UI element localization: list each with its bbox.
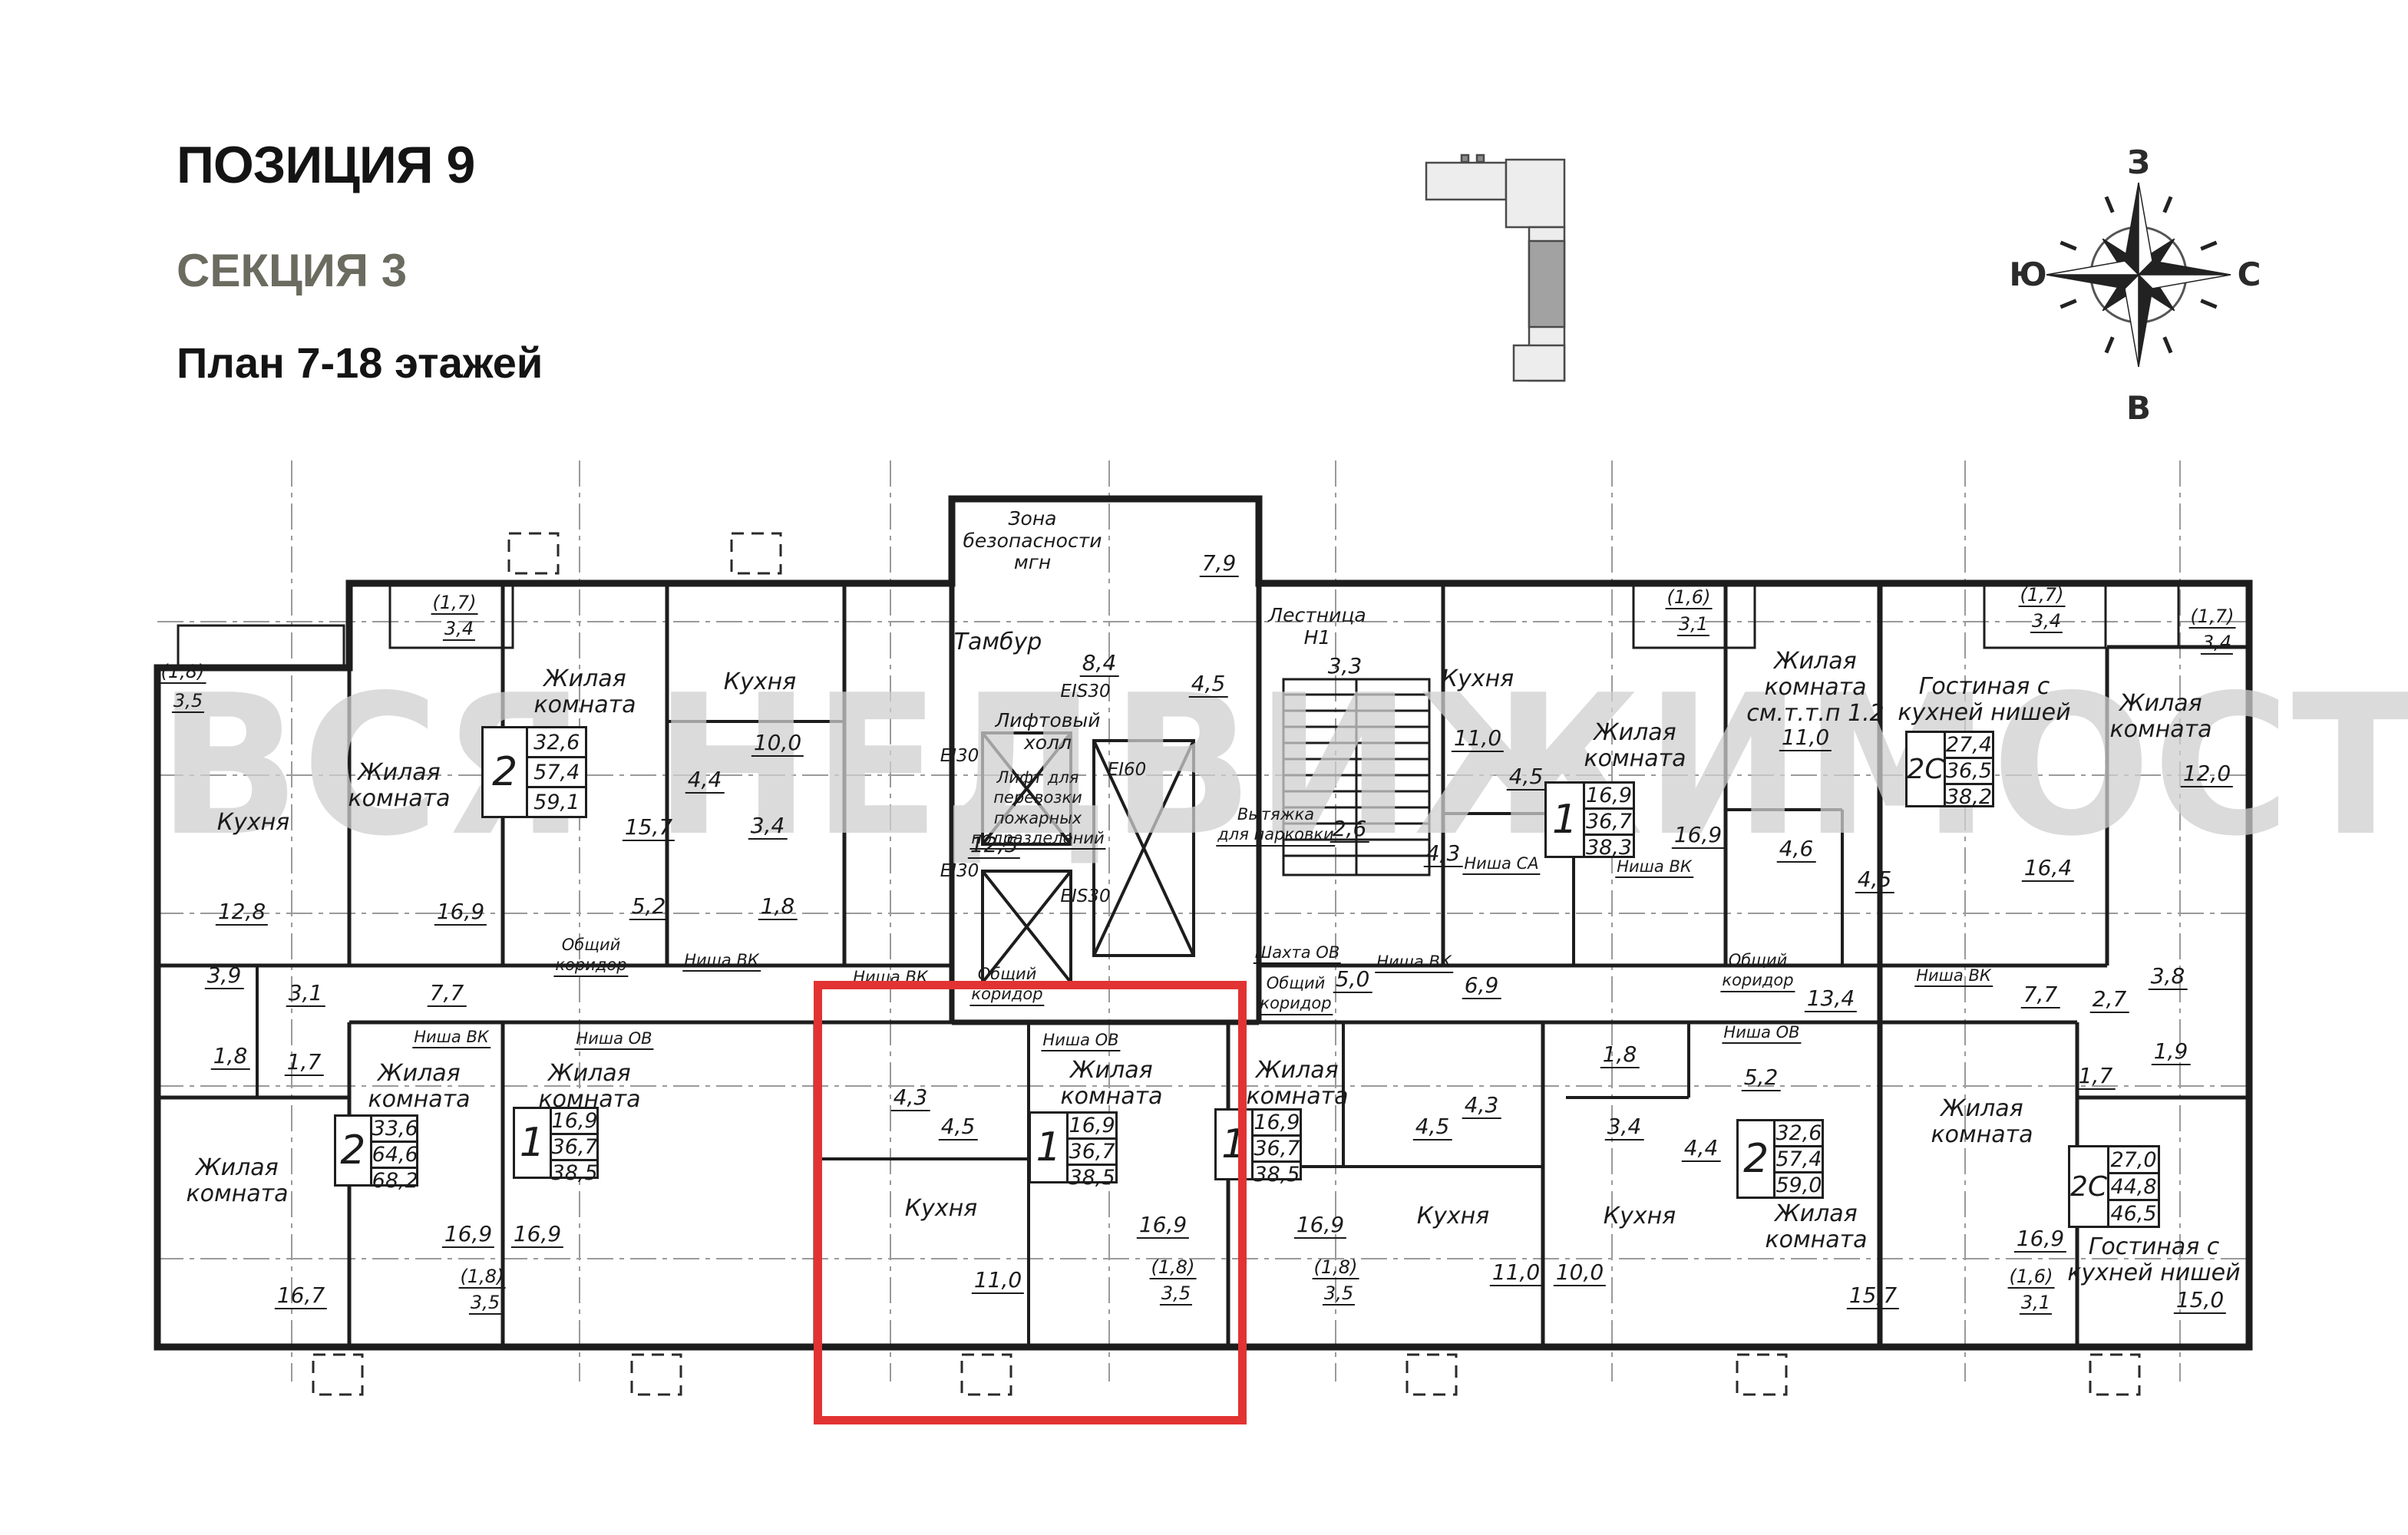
area-label: (1,8) <box>160 662 206 684</box>
area-label: 3,4 <box>1605 1114 1644 1141</box>
area-label: 16,9 <box>1294 1213 1346 1239</box>
room-label: Ниша ВК <box>1375 952 1453 973</box>
area-label: 3,9 <box>205 963 244 989</box>
apartment-floor-area: 36,7 <box>1254 1137 1300 1163</box>
area-label: 3,1 <box>1677 614 1709 636</box>
room-label: Тамбур <box>954 629 1042 655</box>
area-label: 5,0 <box>1333 967 1372 993</box>
apartment-living-area: 33,6 <box>372 1117 418 1143</box>
area-label: 7,7 <box>2021 982 2060 1008</box>
area-label: 11,0 <box>1779 725 1832 751</box>
area-label: 11,0 <box>1490 1260 1542 1286</box>
area-label: 12,8 <box>216 900 268 926</box>
room-label: Жилая комната <box>348 760 451 812</box>
area-label: 3,5 <box>172 691 204 713</box>
area-label: 15,7 <box>1847 1283 1899 1309</box>
area-label: (1,6) <box>2008 1266 2055 1289</box>
apartment-total-area: 46,5 <box>2109 1201 2158 1226</box>
compass-rose: З С В Ю <box>1993 91 2284 451</box>
apartment-total-area: 59,1 <box>528 788 585 816</box>
area-label: 6,9 <box>1462 973 1501 999</box>
area-label: 12,0 <box>2181 761 2233 787</box>
area-label: (1,8) <box>1313 1257 1359 1279</box>
area-label: 4,4 <box>1682 1136 1721 1162</box>
room-label: Жилая комната см.т.т.п 1.2 <box>1746 649 1884 728</box>
apartment-info-box: 2С 27,4 36,5 38,2 <box>1905 731 1994 807</box>
area-label: 3,4 <box>748 814 788 840</box>
room-label: Жилая комната <box>539 1061 641 1113</box>
building-locator <box>1422 140 1575 393</box>
apartment-floor-area: 64,6 <box>372 1143 418 1169</box>
apartment-type: 2 <box>336 1117 372 1184</box>
area-label: 3,4 <box>443 619 475 641</box>
area-label: 3,5 <box>469 1292 501 1315</box>
fire-rating-label: EI30 <box>940 746 979 766</box>
area-label: 2,6 <box>1330 817 1369 843</box>
highlight-box <box>814 981 1247 1424</box>
room-label: Ниша ВК <box>682 950 761 972</box>
page-title-position: ПОЗИЦИЯ 9 <box>177 135 474 195</box>
area-label: 15,0 <box>2174 1288 2226 1314</box>
room-label: Жилая комната <box>368 1061 471 1113</box>
apartment-info-box: 2С 27,0 44,8 46,5 <box>2068 1145 2160 1228</box>
fire-rating-label: EI30 <box>940 861 979 881</box>
area-label: 1,8 <box>1600 1042 1640 1068</box>
room-label: Общий коридор <box>1258 973 1333 1015</box>
area-label: (1,7) <box>431 593 478 615</box>
page-title-floors: План 7-18 этажей <box>177 338 543 388</box>
room-label: Жилая комната <box>2110 691 2212 743</box>
area-label: 11,0 <box>1452 726 1504 752</box>
compass-label-west: З <box>2127 144 2150 181</box>
area-label: 16,9 <box>1672 823 1724 849</box>
room-label: Ниша ВК <box>412 1027 491 1048</box>
area-label: 4,5 <box>1507 764 1546 791</box>
apartment-total-area: 38,3 <box>1585 836 1633 860</box>
area-label: 4,5 <box>1413 1114 1452 1141</box>
area-label: 8,4 <box>1080 651 1119 677</box>
apartment-floor-area: 36,7 <box>552 1135 598 1161</box>
page-title-section: СЕКЦИЯ 3 <box>177 244 407 297</box>
apartment-type: 2 <box>1739 1121 1775 1197</box>
compass-label-north: С <box>2238 256 2261 293</box>
compass-label-south: Ю <box>2009 256 2046 293</box>
area-label: 3,1 <box>2020 1292 2052 1315</box>
room-label: Жилая комната <box>534 666 636 718</box>
area-label: 3,3 <box>1326 654 1365 680</box>
area-label: 1,7 <box>2076 1064 2116 1090</box>
area-label: 3,8 <box>2149 964 2188 990</box>
area-label: 4,3 <box>1424 841 1463 867</box>
area-label: 3,1 <box>286 981 325 1007</box>
room-label: Кухня <box>1442 666 1514 692</box>
room-label: Жилая комната <box>1584 720 1686 772</box>
apartment-info-box: 2 32,6 57,4 59,1 <box>481 726 587 818</box>
area-label: 16,7 <box>275 1283 327 1309</box>
apartment-living-area: 32,6 <box>1775 1121 1822 1147</box>
room-label: Жилая комната <box>1931 1096 2033 1148</box>
area-label: 16,9 <box>442 1222 494 1248</box>
room-label: Кухня <box>1604 1203 1676 1230</box>
apartment-info-box: 2 33,6 64,6 68,2 <box>334 1114 418 1187</box>
room-label: Шахта ОВ <box>1254 942 1341 964</box>
area-label: 16,9 <box>2014 1226 2066 1253</box>
apartment-living-area: 27,0 <box>2109 1147 2158 1174</box>
area-label: 1,7 <box>285 1050 324 1076</box>
room-label: Ниша ВК <box>1914 966 1993 987</box>
apartment-floor-area: 57,4 <box>1775 1147 1822 1174</box>
apartment-floor-area: 44,8 <box>2109 1174 2158 1201</box>
apartment-total-area: 68,2 <box>372 1169 418 1193</box>
apartment-total-area: 59,0 <box>1775 1174 1822 1197</box>
area-label: 1,8 <box>211 1044 250 1070</box>
apartment-floor-area: 57,4 <box>528 758 585 788</box>
apartment-type: 2С <box>1908 733 1946 805</box>
apartment-info-box: 2 32,6 57,4 59,0 <box>1736 1119 1824 1199</box>
apartment-total-area: 38,5 <box>552 1161 598 1185</box>
room-label: Ниша ОВ <box>1722 1022 1801 1044</box>
area-label: 10,0 <box>751 731 804 757</box>
area-label: 1,8 <box>758 894 798 920</box>
area-label: 3,4 <box>2201 632 2233 655</box>
compass-label-east: В <box>2126 389 2151 427</box>
room-label: Жилая комната <box>1766 1201 1868 1253</box>
apartment-living-area: 32,6 <box>528 728 585 758</box>
area-label: 16,4 <box>2022 856 2074 882</box>
area-label: 4,5 <box>1855 867 1894 893</box>
room-label: Лестница Н1 <box>1268 605 1366 649</box>
apartment-living-area: 16,9 <box>1254 1111 1300 1137</box>
room-label: Гостиная с кухней нишей <box>1898 674 2070 726</box>
apartment-type: 1 <box>515 1109 552 1177</box>
room-label: Ниша СА <box>1462 853 1540 875</box>
room-label: Кухня <box>724 669 796 695</box>
room-label: Ниша ОВ <box>574 1028 653 1050</box>
room-label: Кухня <box>1417 1203 1489 1230</box>
apartment-info-box: 1 16,9 36,7 38,3 <box>1544 781 1635 858</box>
room-label: Кухня <box>217 810 289 836</box>
room-label: Общий коридор <box>1720 950 1795 992</box>
area-label: 3,5 <box>1323 1283 1355 1306</box>
area-label: 3,4 <box>2030 611 2063 633</box>
fire-rating-label: EIS30 <box>1060 682 1110 701</box>
room-label: Вытяжка для парковки <box>1216 804 1335 847</box>
room-label: Жилая комната <box>187 1155 289 1207</box>
fire-rating-label: EIS30 <box>1060 886 1110 906</box>
area-label: 16,9 <box>434 900 487 926</box>
apartment-total-area: 38,2 <box>1946 785 1992 809</box>
area-label: 16,9 <box>511 1222 563 1248</box>
apartment-type: 1 <box>1547 784 1585 856</box>
room-label: Гостиная с кухней нишей <box>2067 1234 2240 1286</box>
area-label: 10,0 <box>1554 1260 1606 1286</box>
room-label: Лифтовый холл <box>996 710 1101 754</box>
area-label: 13,4 <box>1805 986 1857 1012</box>
area-label: 1,9 <box>2152 1039 2191 1065</box>
apartment-floor-area: 36,5 <box>1946 759 1992 785</box>
room-label: Зона безопасности мгн <box>963 508 1102 574</box>
apartment-type: 2С <box>2070 1147 2109 1226</box>
area-label: 4,3 <box>1462 1093 1501 1119</box>
floor-plan-page: ВСЯ НЕДВИЖИМОСТЬ ПОЗИЦИЯ 9 СЕКЦИЯ 3 План… <box>0 0 2408 1535</box>
area-label: 4,4 <box>685 767 725 794</box>
area-label: 4,5 <box>1189 672 1228 698</box>
area-label: 7,7 <box>428 981 467 1007</box>
apartment-floor-area: 36,7 <box>1585 810 1633 836</box>
area-label: 5,2 <box>629 894 669 920</box>
area-label: 2,7 <box>2090 987 2129 1013</box>
apartment-total-area: 38,5 <box>1254 1163 1300 1187</box>
area-label: 15,7 <box>623 815 675 841</box>
area-label: 7,9 <box>1200 551 1239 577</box>
area-label: (1,7) <box>2189 606 2236 629</box>
apartment-info-box: 1 16,9 36,7 38,5 <box>513 1107 599 1179</box>
area-label: 12,5 <box>968 833 1020 859</box>
room-label: Жилая комната <box>1247 1058 1349 1110</box>
fire-rating-label: EI60 <box>1108 760 1147 780</box>
area-label: 5,2 <box>1742 1065 1781 1091</box>
area-label: 4,6 <box>1777 837 1816 863</box>
apartment-type: 2 <box>484 728 528 816</box>
locator-current-section <box>1529 241 1564 327</box>
area-label: (1,7) <box>2019 585 2066 607</box>
room-label: Ниша ВК <box>1615 857 1693 878</box>
apartment-living-area: 16,9 <box>552 1109 598 1135</box>
apartment-living-area: 16,9 <box>1585 784 1633 810</box>
compass-star <box>2046 183 2231 367</box>
apartment-living-area: 27,4 <box>1946 733 1992 759</box>
area-label: (1,8) <box>459 1266 506 1289</box>
area-label: (1,6) <box>1666 587 1713 609</box>
room-label: Общий коридор <box>553 935 628 977</box>
